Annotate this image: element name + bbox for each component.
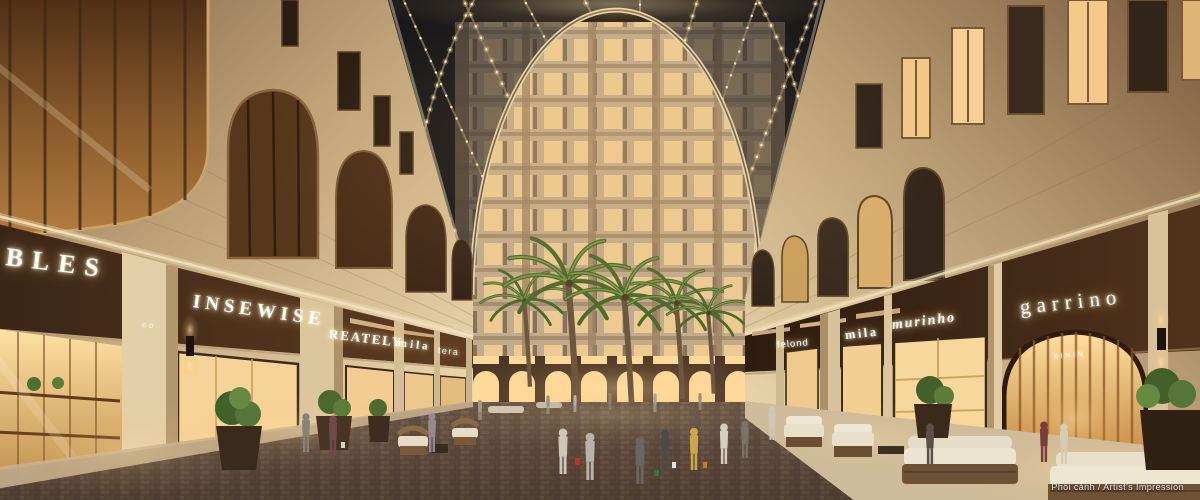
window-text-co: co: [142, 320, 157, 330]
planter-pot: [1140, 410, 1200, 470]
storefront-sign-tera: tera: [437, 345, 459, 357]
wicker-sofa: [908, 436, 1012, 450]
wall-sconce: [1157, 328, 1166, 350]
wall-sconce: [186, 336, 194, 356]
shelf-plant: [27, 377, 41, 391]
arcade-illustration: [0, 0, 1200, 500]
coffee-table: [878, 446, 904, 454]
planter-pot: [216, 426, 262, 470]
arcade-rendering: BLES co INSEWISE REATELY mila tera felon…: [0, 0, 1200, 500]
watermark-caption: Phối cảnh / Artist's Impression: [1051, 482, 1184, 492]
shelf-plant: [52, 377, 64, 389]
arched-window: [0, 0, 208, 234]
